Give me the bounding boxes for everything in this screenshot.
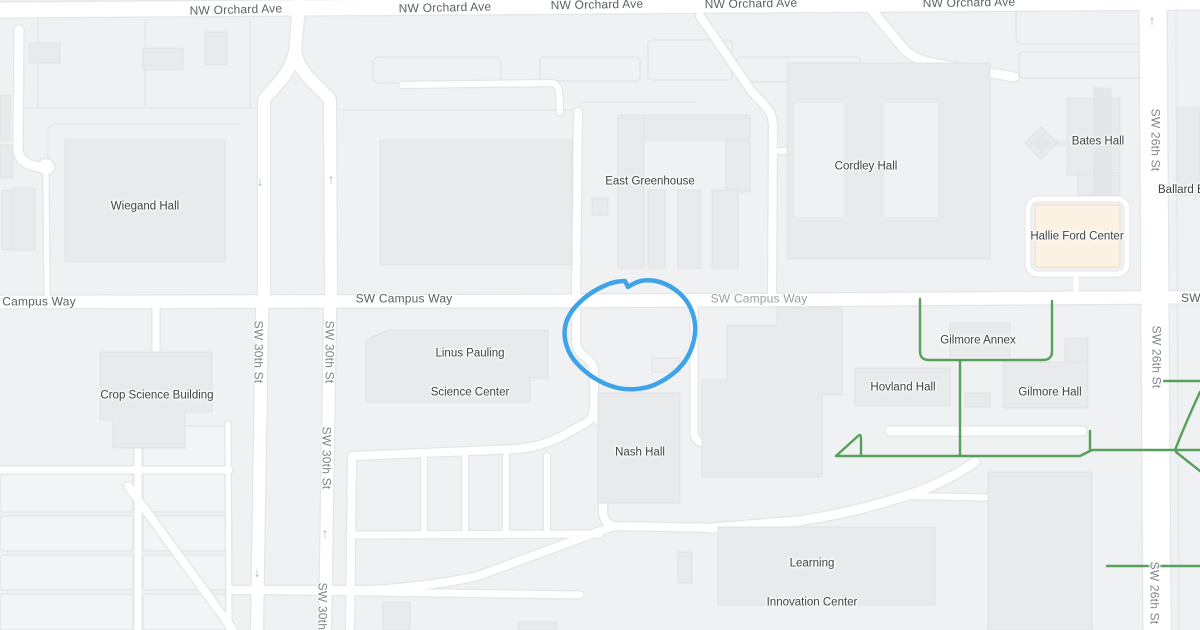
street-label-sw-30th-st: SW 30th St	[252, 321, 265, 384]
street-label-nw-orchard-ave: NW Orchard Ave	[923, 0, 1016, 10]
unlabeled-hall-building	[380, 140, 572, 265]
street-label-campus-way: Campus Way	[2, 296, 76, 309]
building-label-learning-innovation-center: Learning Innovation Center	[767, 532, 858, 623]
street-label-sw-26th-st: SW 26th St	[1150, 326, 1163, 389]
street-label-sw-26th-st: SW 26th St	[1149, 109, 1162, 172]
building-label-gilmore-hall: Gilmore Hall	[1018, 387, 1081, 400]
bike-path	[1176, 452, 1200, 471]
building-label-crop-science: Crop Science Building	[100, 390, 213, 403]
street-label-sw-26th-st: SW 26th St	[1148, 562, 1161, 625]
field-and-parking-plots	[0, 426, 226, 630]
street-label-nw-orchard-ave: NW Orchard Ave	[551, 0, 644, 12]
street-label-sw-campus-way-clipped: SW Campus Way	[1181, 292, 1200, 305]
building-label-hallie-ford-center: Hallie Ford Center	[1030, 231, 1123, 244]
bike-path	[836, 435, 861, 456]
building-label-east-greenhouse: East Greenhouse	[605, 176, 695, 189]
one-way-up-arrow-icon: ↑	[328, 172, 335, 187]
street-label-sw-campus-way: SW Campus Way	[356, 293, 453, 306]
east-greenhouse-building	[592, 115, 750, 268]
one-way-down-arrow-icon: ↓	[254, 565, 261, 580]
street-label-sw-campus-way: SW Campus Way	[711, 293, 808, 306]
building-label-wiegand-hall: Wiegand Hall	[111, 201, 179, 214]
one-way-up-arrow-icon: ↑	[1149, 13, 1156, 28]
unlabeled-hall-building	[702, 308, 842, 477]
map-layers	[0, 0, 1200, 630]
building-label-bates-hall: Bates Hall	[1072, 136, 1124, 149]
house-building	[143, 48, 183, 70]
building-label-nash-hall: Nash Hall	[615, 447, 665, 460]
street-label-sw-30th-st-clipped: SW 30th St	[316, 583, 329, 630]
hallie-ford-center-building	[1028, 199, 1127, 298]
street-label-nw-orchard-ave: NW Orchard Ave	[190, 2, 283, 17]
map-canvas[interactable]: NW Orchard Ave NW Orchard Ave NW Orchard…	[0, 0, 1200, 630]
building-label-ballard-clipped: Ballard Ex	[1158, 184, 1200, 197]
street-label-nw-orchard-ave: NW Orchard Ave	[705, 0, 798, 11]
house-building	[29, 43, 60, 63]
one-way-down-arrow-icon: ↓	[257, 174, 264, 189]
street-label-sw-30th-st: SW 30th St	[323, 321, 336, 384]
house-building	[205, 32, 227, 65]
building-label-hovland-hall: Hovland Hall	[870, 382, 935, 395]
street-label-sw-30th-st: SW 30th St	[320, 427, 333, 490]
one-way-up-arrow-icon: ↑	[322, 526, 329, 541]
ballard-extension-building	[1177, 108, 1200, 195]
building-label-gilmore-annex: Gilmore Annex	[940, 335, 1015, 348]
unlabeled-building	[988, 472, 1092, 630]
building-label-linus-pauling: Linus Pauling Science Center	[431, 322, 510, 413]
street-label-nw-orchard-ave: NW Orchard Ave	[399, 1, 492, 16]
building-label-cordley-hall: Cordley Hall	[835, 161, 898, 174]
